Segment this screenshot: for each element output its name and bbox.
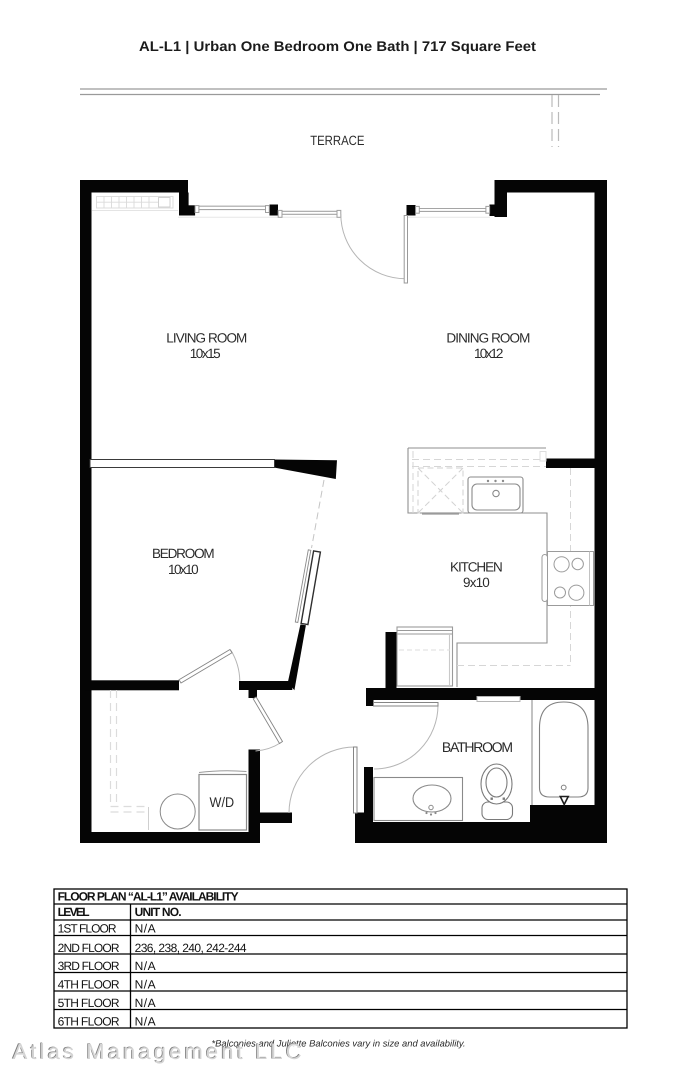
svg-text:LEVEL: LEVEL: [58, 905, 90, 919]
svg-text:10x15: 10x15: [190, 346, 221, 361]
svg-text:FLOOR PLAN “AL-L1” AVAILABILIT: FLOOR PLAN “AL-L1” AVAILABILITY: [58, 890, 239, 904]
svg-text:6TH FLOOR: 6TH FLOOR: [58, 1014, 120, 1028]
svg-text:AL-L1 | Urban One Bedroom One: AL-L1 | Urban One Bedroom One Bath | 717…: [139, 38, 536, 55]
svg-text:10x12: 10x12: [474, 346, 503, 361]
svg-text:2ND FLOOR: 2ND FLOOR: [58, 941, 120, 955]
svg-text:BATHROOM: BATHROOM: [442, 739, 513, 755]
svg-text:9x10: 9x10: [463, 575, 490, 590]
svg-text:DINING ROOM: DINING ROOM: [446, 331, 530, 346]
svg-text:KITCHEN: KITCHEN: [450, 560, 503, 575]
svg-text:N/A: N/A: [135, 922, 156, 936]
svg-text:UNIT NO.: UNIT NO.: [135, 905, 182, 919]
svg-text:10x10: 10x10: [168, 562, 199, 577]
svg-text:236, 238, 240, 242-244: 236, 238, 240, 242-244: [135, 941, 247, 955]
svg-text:LIVING ROOM: LIVING ROOM: [166, 331, 247, 346]
svg-text:Atlas Management LLC: Atlas Management LLC: [13, 1039, 302, 1064]
svg-text:5TH FLOOR: 5TH FLOOR: [58, 996, 120, 1010]
svg-text:N/A: N/A: [135, 959, 156, 973]
svg-text:BEDROOM: BEDROOM: [152, 546, 215, 561]
svg-text:TERRACE: TERRACE: [310, 133, 364, 148]
svg-text:W/D: W/D: [210, 794, 235, 810]
svg-text:N/A: N/A: [135, 978, 156, 992]
svg-text:1ST FLOOR: 1ST FLOOR: [58, 922, 117, 936]
svg-text:3RD FLOOR: 3RD FLOOR: [58, 959, 120, 973]
svg-text:N/A: N/A: [135, 996, 156, 1010]
svg-text:4TH FLOOR: 4TH FLOOR: [58, 978, 120, 992]
svg-text:N/A: N/A: [135, 1014, 156, 1028]
